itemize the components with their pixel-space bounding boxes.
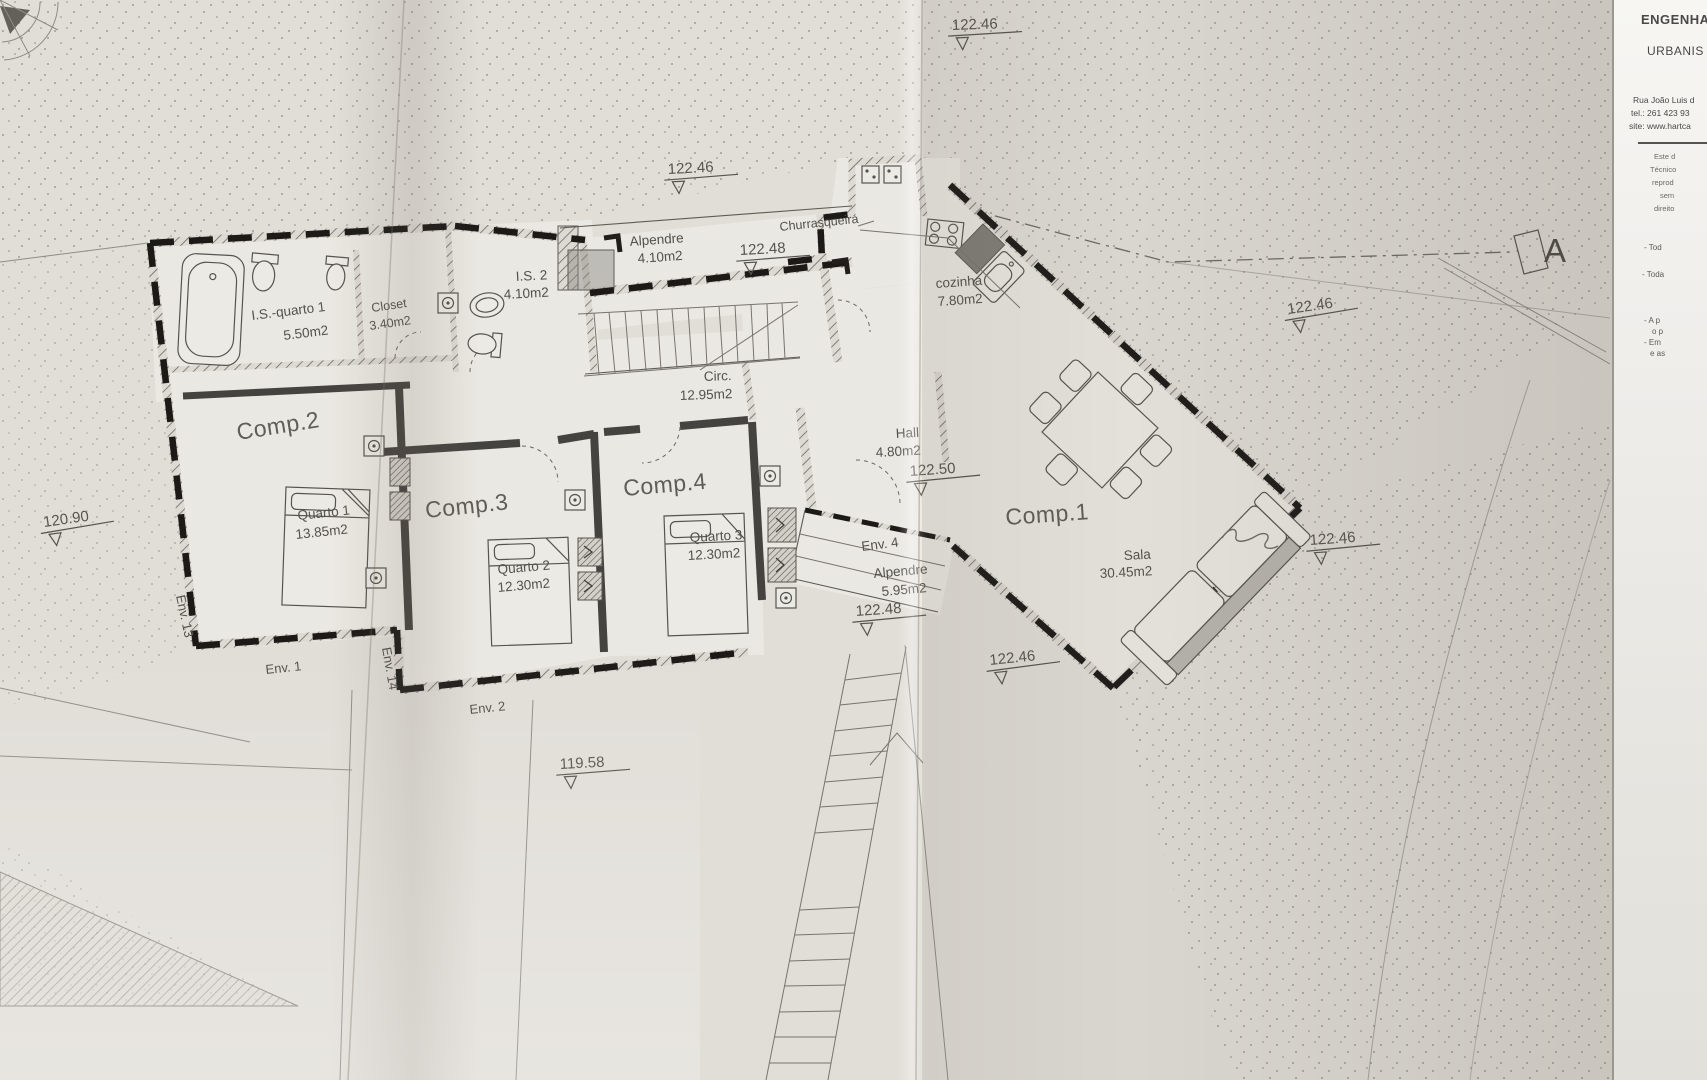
svg-text:122.48: 122.48 xyxy=(739,240,786,259)
label-alpendre-top-area: 4.10m2 xyxy=(637,248,683,266)
title-block-site: site: www.hartca xyxy=(1629,121,1691,131)
title-block-note-line: o p xyxy=(1652,327,1663,336)
title-block-divider xyxy=(1638,142,1707,144)
svg-text:122.46: 122.46 xyxy=(667,159,714,178)
floor-plan-photo: A 122.46 122.46 122.48 122.46 122.50 122… xyxy=(0,0,1707,1080)
svg-text:122.48: 122.48 xyxy=(855,600,902,620)
title-block-note-line: - Toda xyxy=(1642,270,1664,279)
title-block-notice-line: sem xyxy=(1660,191,1674,200)
title-block-discipline-1: ENGENHA xyxy=(1641,12,1707,27)
title-block-panel: ENGENHA URBANIS Rua João Luis d tel.: 26… xyxy=(1612,0,1707,1080)
floor-plan-drawing: A 122.46 122.46 122.48 122.46 122.50 122… xyxy=(0,0,1707,1080)
label-is2-area: 4.10m2 xyxy=(503,285,549,302)
title-block-notice-line: Este d xyxy=(1654,152,1675,161)
title-block-note-line: - A p xyxy=(1644,316,1660,325)
title-block-address: Rua João Luis d xyxy=(1633,95,1694,105)
title-block-notice-line: direito xyxy=(1654,204,1674,213)
title-block-note-line: - Tod xyxy=(1644,243,1662,252)
label-circ-name: Circ. xyxy=(704,368,732,384)
title-block-discipline-2: URBANIS xyxy=(1647,44,1704,58)
title-block-tel: tel.: 261 423 93 xyxy=(1631,108,1690,118)
bathtub xyxy=(177,253,245,366)
label-quarto3-name: Quarto 3 xyxy=(689,527,742,545)
title-block-note-line: - Em xyxy=(1644,338,1661,347)
title-block-note-line: e as xyxy=(1650,349,1665,358)
label-quarto3-area: 12.30m2 xyxy=(687,545,740,563)
label-is2-name: I.S. 2 xyxy=(515,267,547,284)
label-circ-area: 12.95m2 xyxy=(680,386,733,403)
title-block-notice-line: Técnico xyxy=(1650,165,1676,174)
title-block-notice-line: reprod xyxy=(1652,178,1674,187)
